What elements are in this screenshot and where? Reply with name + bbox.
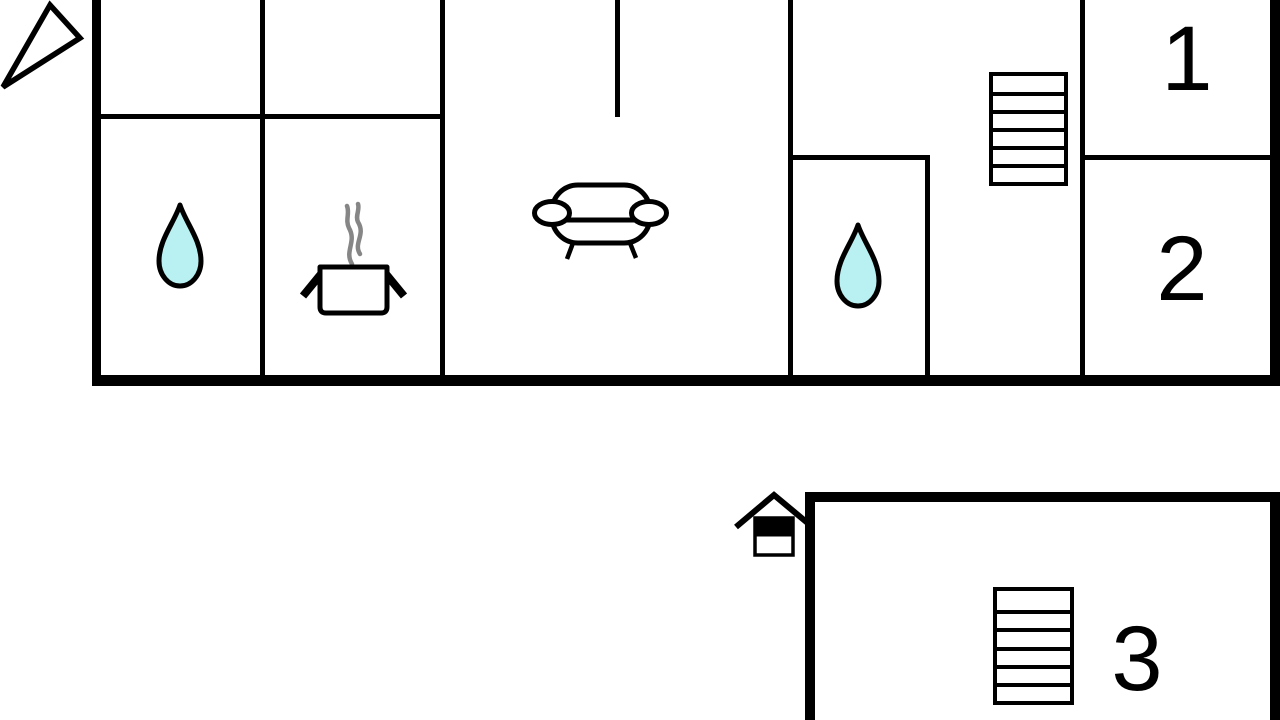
interior-wall: [1080, 155, 1275, 160]
interior-wall: [925, 157, 930, 378]
interior-wall: [260, 0, 265, 378]
interior-wall: [440, 0, 445, 378]
annex-wall-right: [1270, 492, 1280, 720]
room-label-1: 1: [1161, 8, 1212, 110]
room-label-3: 3: [1111, 608, 1162, 710]
interior-wall: [788, 0, 793, 378]
exterior-wall-left: [92, 0, 101, 386]
annex-wall-left: [805, 492, 815, 720]
interior-wall-partial: [615, 0, 620, 117]
interior-wall: [788, 155, 930, 160]
floor-plan-canvas: 1 2 3: [0, 0, 1280, 720]
annex-wall-top: [805, 492, 1280, 502]
exterior-wall-right: [1270, 0, 1280, 386]
exterior-wall-bottom: [92, 375, 1280, 386]
room-label-2: 2: [1156, 218, 1207, 320]
stairs-icon: [991, 74, 1066, 184]
background: [0, 0, 1280, 720]
interior-wall: [98, 114, 443, 119]
stairs-icon: [995, 589, 1072, 703]
interior-wall: [1080, 0, 1085, 378]
